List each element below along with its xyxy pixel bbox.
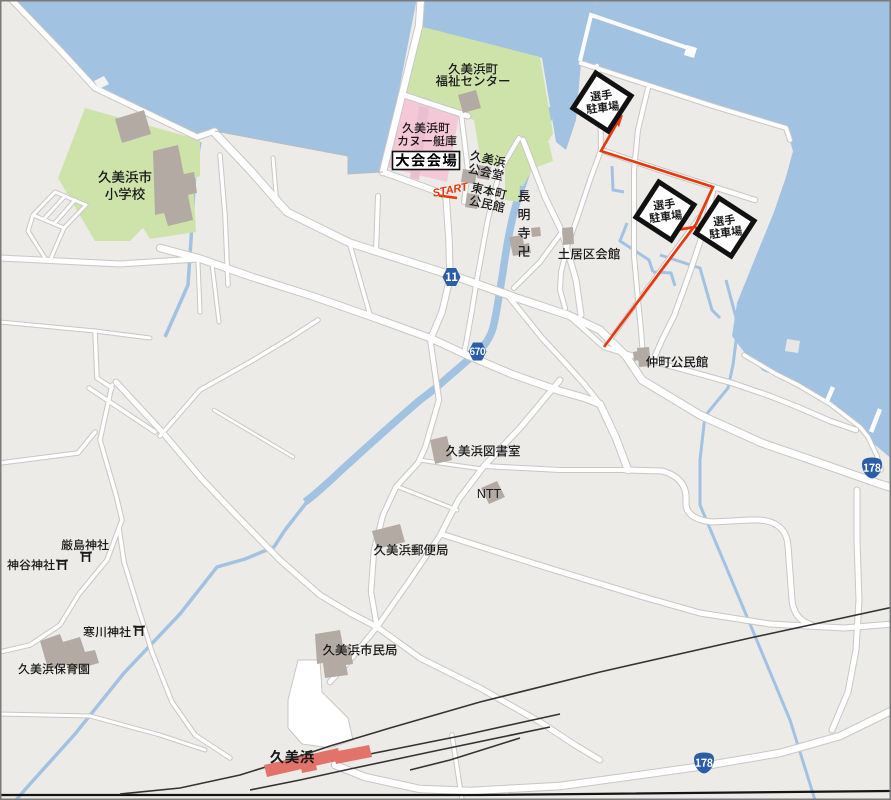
- svg-text:NTT: NTT: [477, 487, 502, 501]
